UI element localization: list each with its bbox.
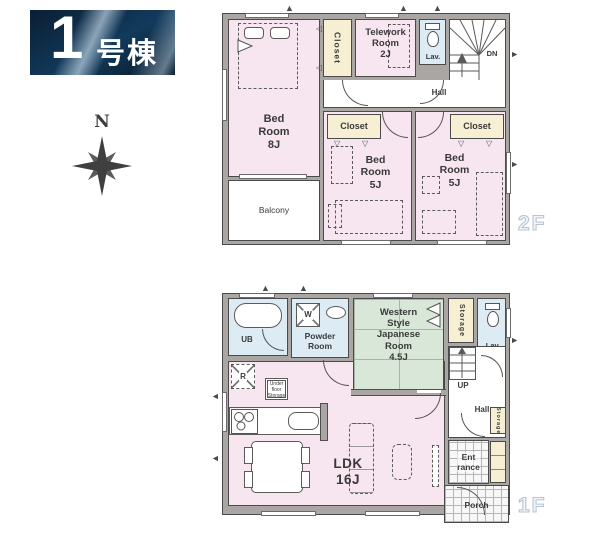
vent-marker-icon: ▲ bbox=[261, 284, 270, 293]
closet-door-fold-icon: ◁ bbox=[316, 25, 322, 33]
compass-north-label: N bbox=[62, 112, 142, 132]
toilet-icon bbox=[425, 23, 440, 30]
kitchen-counter bbox=[229, 407, 323, 435]
door-arc bbox=[481, 355, 503, 377]
washing-machine-icon: W bbox=[296, 303, 320, 327]
room-entrance: Ent rance bbox=[448, 440, 489, 484]
window bbox=[365, 13, 399, 18]
room-label: Bed Room 5J bbox=[410, 152, 499, 189]
dining-chair bbox=[244, 471, 253, 488]
vent-marker-icon: ▲ bbox=[285, 4, 294, 13]
room-closet-top: Closet bbox=[323, 19, 352, 77]
washer-label: W bbox=[303, 310, 313, 319]
underfloor-label: Under floor Storage bbox=[266, 382, 287, 400]
window bbox=[437, 240, 487, 245]
window bbox=[239, 293, 275, 298]
room-label: Lav. bbox=[416, 53, 450, 62]
closet-left: Closet bbox=[327, 114, 381, 139]
room-bedroom-8j: Bed Room 8J ◁ ◁ bbox=[228, 19, 320, 177]
closet-door-fold-icon: ◁ bbox=[316, 64, 322, 72]
room-label: Balcony bbox=[229, 205, 319, 215]
door-arc bbox=[262, 329, 284, 351]
sink-icon bbox=[326, 306, 346, 319]
floor-plan-1f: UB W Powder Room Western Style Japanese … bbox=[222, 293, 510, 515]
room-porch: Porch bbox=[444, 485, 509, 523]
refrigerator-icon: R bbox=[231, 364, 255, 389]
desk bbox=[422, 210, 456, 234]
counter-end-wall bbox=[320, 403, 328, 441]
vent-marker-icon: ▲ bbox=[433, 4, 442, 13]
room-ub: UB bbox=[228, 298, 288, 356]
closet-right: Closet bbox=[450, 114, 504, 139]
floor-plan-page: 1 号棟 N Bed Room 8J ◁ ◁ Balcony bbox=[0, 0, 600, 546]
closet-hanger-icon: ▽ bbox=[458, 140, 464, 148]
room-label: UB bbox=[235, 335, 259, 344]
vent-marker-icon: ▲ bbox=[399, 4, 408, 13]
window bbox=[373, 293, 413, 298]
room-telework: Telework Room 2J bbox=[355, 19, 416, 77]
compass-star-icon bbox=[70, 134, 134, 198]
bed-fold-corner bbox=[236, 38, 254, 54]
stairs-up-label: UP bbox=[453, 381, 473, 390]
door-arc bbox=[418, 112, 444, 138]
stairs-down-label: DN bbox=[482, 50, 502, 59]
room-hall-2f: Hall bbox=[323, 80, 506, 108]
dining-table bbox=[251, 441, 303, 493]
room-label: Closet bbox=[332, 32, 342, 64]
shoe-cabinet bbox=[490, 441, 506, 483]
window bbox=[245, 13, 289, 18]
cabinet-shelf bbox=[491, 469, 505, 470]
cabinet-shelf bbox=[491, 455, 505, 456]
closet-hanger-icon: ▽ bbox=[362, 140, 368, 148]
dining-chair bbox=[301, 447, 310, 464]
window bbox=[222, 392, 227, 432]
fridge-label: R bbox=[239, 372, 247, 381]
underfloor-storage: Under floor Storage bbox=[265, 378, 288, 400]
room-balcony: Balcony bbox=[228, 180, 320, 241]
vent-marker-icon: ▲ bbox=[510, 336, 519, 345]
room-storage-top: Storage bbox=[448, 298, 474, 343]
toilet-icon bbox=[487, 311, 499, 327]
vent-marker-icon: ▲ bbox=[211, 454, 220, 463]
room-label: Storage bbox=[457, 304, 465, 337]
floor-1f-label: 1F bbox=[518, 494, 547, 518]
floor-2f-label: 2F bbox=[518, 212, 547, 236]
room-powder: W Powder Room bbox=[291, 298, 349, 358]
closet-hanger-icon: ▽ bbox=[486, 140, 492, 148]
door-arc bbox=[382, 112, 408, 138]
room-label: Bed Room 5J bbox=[332, 154, 419, 191]
room-label: LDK 16J bbox=[318, 456, 378, 488]
toilet-icon bbox=[485, 303, 500, 310]
room-label: Bed Room 8J bbox=[229, 113, 319, 152]
window bbox=[506, 152, 511, 194]
toilet-icon bbox=[427, 31, 439, 47]
stove-icon bbox=[231, 409, 258, 434]
staircase-down: DN bbox=[449, 19, 506, 81]
room-label: Ent rance bbox=[457, 452, 480, 472]
window bbox=[341, 240, 391, 245]
pillow bbox=[270, 27, 290, 39]
floor-plan-2f: Bed Room 8J ◁ ◁ Balcony Closet Telework … bbox=[222, 13, 510, 245]
room-label: Telework Room 2J bbox=[356, 27, 415, 61]
nightstand bbox=[328, 204, 342, 228]
room-storage-side: Storage bbox=[490, 407, 506, 434]
side-table bbox=[392, 444, 412, 480]
stairs-up-icon bbox=[449, 347, 476, 380]
folding-door-icon bbox=[424, 302, 442, 330]
building-number: 1 bbox=[50, 3, 83, 72]
dining-chair bbox=[301, 471, 310, 488]
compass-rose: N bbox=[62, 112, 142, 212]
vent-marker-icon: ▲ bbox=[211, 392, 220, 401]
bed-single bbox=[335, 200, 403, 234]
vent-marker-icon: ▲ bbox=[510, 160, 519, 169]
room-japanese: Western Style Japanese Room 4.5J bbox=[353, 298, 444, 391]
building-banner: 1 号棟 bbox=[30, 10, 175, 75]
dining-chair bbox=[244, 447, 253, 464]
room-label: Closet bbox=[463, 121, 491, 132]
window bbox=[506, 308, 511, 338]
room-label: Powder Room bbox=[292, 331, 348, 351]
bathtub-icon bbox=[234, 303, 282, 328]
kitchen-sink-icon bbox=[288, 412, 319, 430]
vent-marker-icon: ▲ bbox=[510, 50, 519, 59]
tv-board bbox=[432, 445, 439, 487]
bed-double bbox=[238, 23, 298, 89]
door-arc bbox=[342, 80, 368, 106]
window bbox=[261, 511, 316, 516]
window bbox=[222, 69, 227, 121]
window bbox=[365, 511, 420, 516]
door-arc bbox=[420, 80, 444, 104]
building-name: 号棟 bbox=[96, 30, 158, 72]
room-bedroom-5j-right: Closet ▽ ▽ Bed Room 5J bbox=[415, 111, 506, 241]
sliding-window bbox=[239, 174, 307, 179]
room-bedroom-5j-left: Closet ▽ ▽ Bed Room 5J bbox=[323, 111, 412, 241]
room-label: Porch bbox=[445, 500, 508, 510]
door-arc bbox=[461, 413, 485, 437]
room-lav-2f: Lav. bbox=[419, 19, 446, 65]
room-label: Storage bbox=[495, 407, 501, 434]
vent-marker-icon: ▲ bbox=[299, 284, 308, 293]
room-label: Closet bbox=[340, 121, 368, 132]
